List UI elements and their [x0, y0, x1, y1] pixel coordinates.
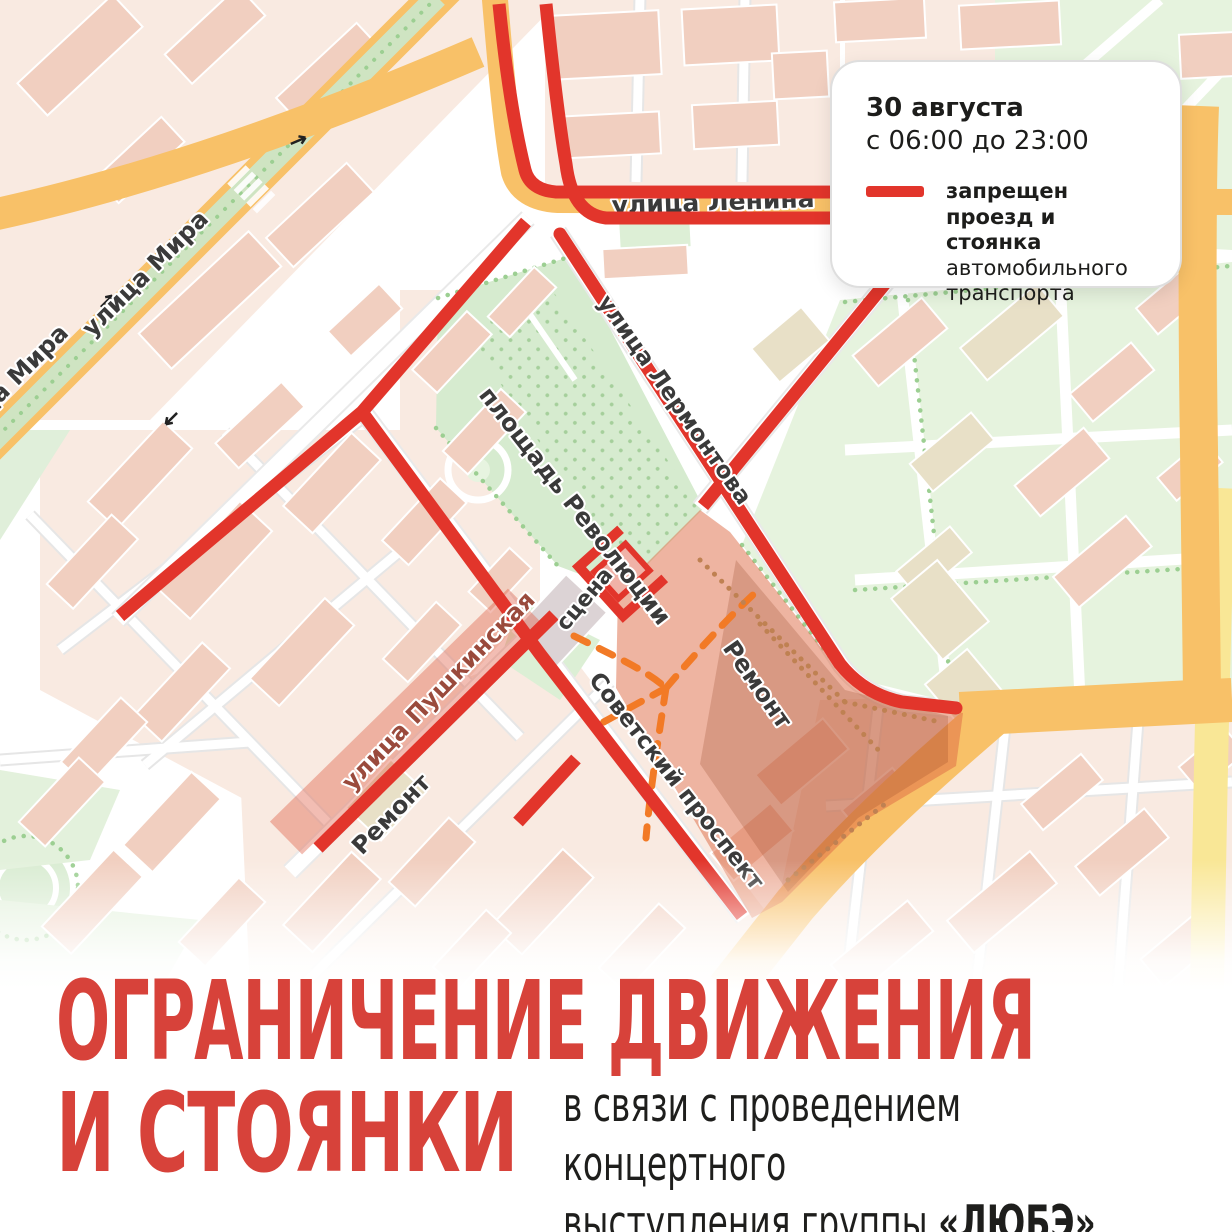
band-name: «ЛЮБЭ» [938, 1196, 1096, 1232]
poster-title-line1: ОГРАНИЧЕНИЕ ДВИЖЕНИЯ [56, 966, 1035, 1076]
subtitle-line1: в связи с проведением концертного [563, 1078, 961, 1192]
east-avenue [960, 700, 1232, 714]
poster-subtitle: в связи с проведением концертного выступ… [563, 1077, 1193, 1232]
restriction-bold-text: запрещен проезд и стоянка [946, 179, 1068, 254]
restriction-description: запрещен проезд и стоянка автомобильного… [946, 179, 1148, 307]
subtitle-line2: выступления группы [563, 1196, 928, 1232]
poster-title-line2: И СТОЯНКИ [56, 1078, 517, 1188]
legend-row: запрещен проезд и стоянка автомобильного… [866, 179, 1148, 307]
legend-card: 30 августа с 06:00 до 23:00 запрещен про… [830, 60, 1182, 288]
event-time: с 06:00 до 23:00 [866, 125, 1148, 158]
event-date: 30 августа [866, 92, 1148, 125]
right-vertical-road [1198, 106, 1202, 692]
traffic-restriction-poster: улица Ленина улица Мира улица Мира улица… [0, 0, 1232, 1232]
restriction-regular-text: автомобильного транспорта [946, 256, 1128, 306]
closed-road-swatch [866, 186, 924, 197]
